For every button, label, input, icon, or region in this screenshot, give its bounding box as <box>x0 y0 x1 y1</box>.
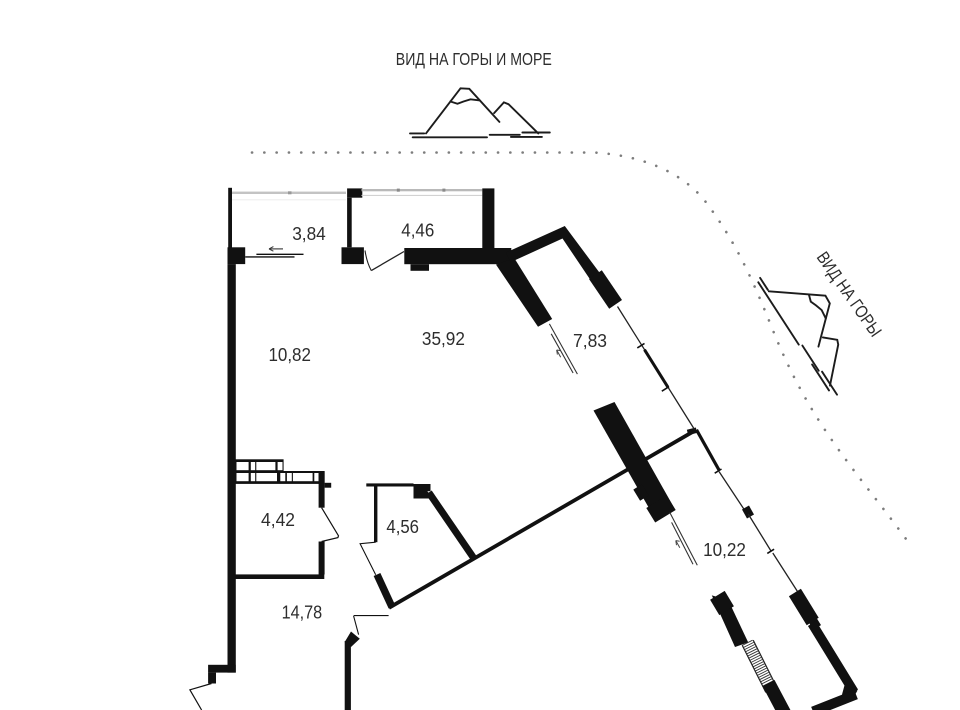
svg-text:4,42: 4,42 <box>261 509 295 530</box>
svg-text:14,78: 14,78 <box>282 601 323 622</box>
svg-text:4,56: 4,56 <box>386 516 419 537</box>
svg-text:4,46: 4,46 <box>401 220 434 241</box>
svg-text:3,84: 3,84 <box>292 223 326 244</box>
svg-text:35,92: 35,92 <box>422 328 465 349</box>
svg-text:10,22: 10,22 <box>703 539 746 560</box>
svg-text:ВИД НА ГОРЫ И МОРЕ: ВИД НА ГОРЫ И МОРЕ <box>396 49 552 69</box>
svg-text:7,83: 7,83 <box>573 330 607 351</box>
svg-text:10,82: 10,82 <box>268 344 311 365</box>
